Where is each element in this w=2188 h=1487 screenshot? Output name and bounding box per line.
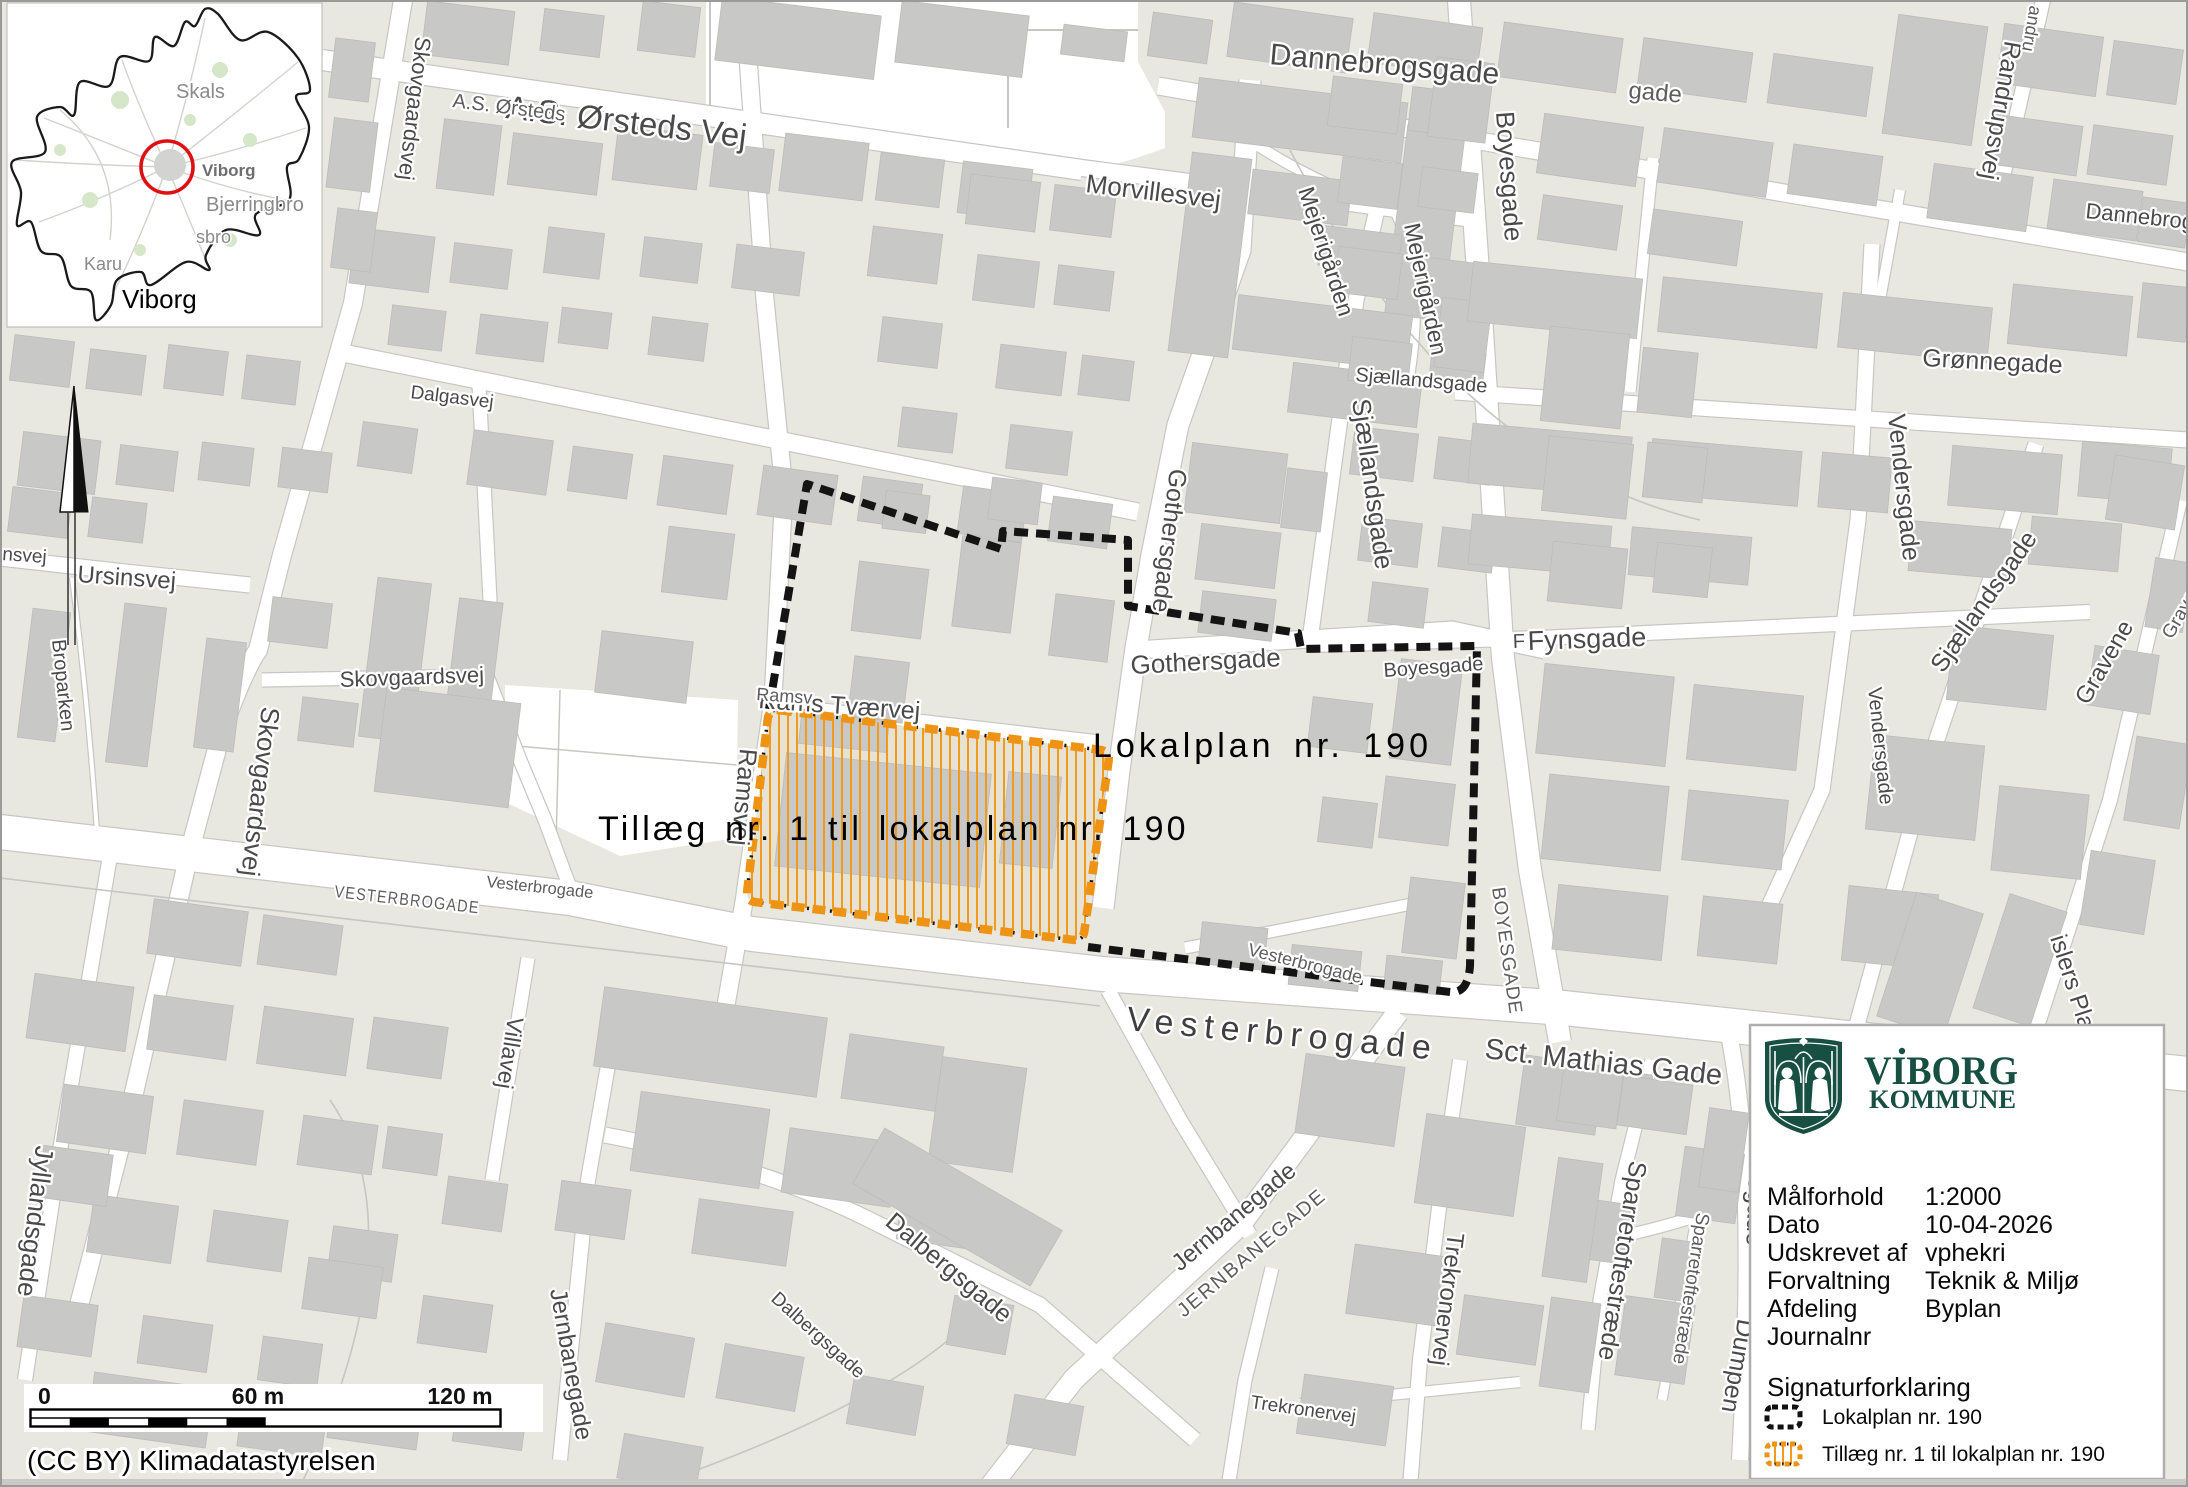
svg-text:Fynsgade: Fynsgade	[1527, 622, 1647, 656]
svg-text:Tillæg nr. 1 til lokalplan nr.: Tillæg nr. 1 til lokalplan nr. 190	[598, 810, 1189, 848]
svg-text:Ramsv: Ramsv	[756, 684, 813, 708]
svg-text:(CC BY) Klimadatastyrelsen: (CC BY) Klimadatastyrelsen	[27, 1445, 376, 1476]
svg-text:10-04-2026: 10-04-2026	[1925, 1211, 2053, 1239]
svg-text:Bjerringbro: Bjerringbro	[206, 194, 304, 216]
svg-text:Skals: Skals	[176, 81, 225, 103]
svg-text:nsvej: nsvej	[2, 544, 48, 568]
svg-text:Skovgaardsvej: Skovgaardsvej	[339, 662, 484, 692]
svg-text:Målforhold: Målforhold	[1767, 1183, 1884, 1211]
svg-text:Viborg: Viborg	[122, 284, 197, 314]
svg-text:Udskrevet af: Udskrevet af	[1767, 1239, 1907, 1267]
svg-text:Dato: Dato	[1767, 1211, 1820, 1239]
svg-text:Teknik & Miljø: Teknik & Miljø	[1925, 1267, 2079, 1295]
svg-text:Journalnr: Journalnr	[1767, 1323, 1871, 1351]
svg-text:1:2000: 1:2000	[1925, 1183, 2001, 1211]
svg-text:F: F	[1512, 631, 1525, 653]
svg-text:Lokalplan nr. 190: Lokalplan nr. 190	[1822, 1406, 1982, 1429]
svg-text:vphekri: vphekri	[1925, 1239, 2006, 1267]
svg-text:gade: gade	[1627, 77, 1683, 109]
svg-text:Afdeling: Afdeling	[1767, 1295, 1857, 1323]
svg-text:60 m: 60 m	[232, 1383, 284, 1409]
svg-text:Forvaltning: Forvaltning	[1767, 1267, 1891, 1295]
svg-text:Viborg: Viborg	[202, 161, 256, 180]
svg-text:sbro: sbro	[196, 227, 231, 247]
svg-text:Signaturforklaring: Signaturforklaring	[1767, 1372, 1971, 1402]
svg-text:120 m: 120 m	[427, 1383, 492, 1409]
svg-text:Karu: Karu	[84, 254, 122, 274]
svg-text:0: 0	[38, 1383, 51, 1409]
svg-text:Lokalplan nr. 190: Lokalplan nr. 190	[1093, 727, 1432, 765]
svg-text:Tillæg nr. 1 til lokalplan nr.: Tillæg nr. 1 til lokalplan nr. 190	[1822, 1443, 2105, 1466]
svg-text:KOMMUNE: KOMMUNE	[1869, 1085, 2016, 1114]
svg-text:Byplan: Byplan	[1925, 1295, 2001, 1323]
